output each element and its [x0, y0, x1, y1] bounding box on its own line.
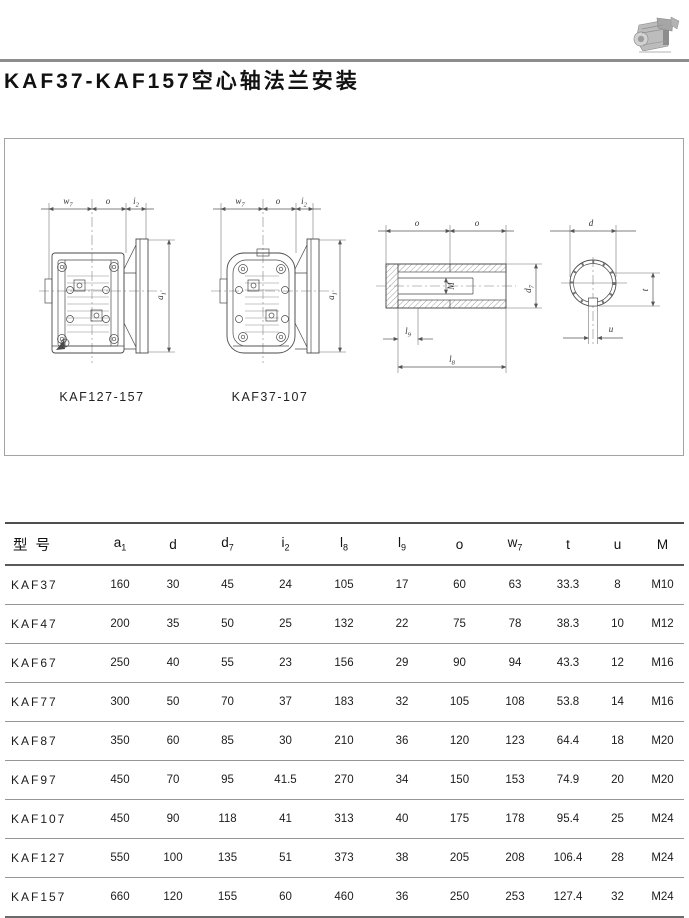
dim-label-i2: i2 — [133, 196, 140, 209]
value-cell: 460 — [315, 878, 373, 918]
value-cell: 85 — [199, 722, 256, 761]
value-cell: 350 — [93, 722, 147, 761]
model-cell: KAF37 — [5, 565, 93, 605]
value-cell: M24 — [641, 878, 684, 918]
value-cell: 78 — [488, 605, 542, 644]
value-cell: 175 — [431, 800, 488, 839]
model-cell: KAF47 — [5, 605, 93, 644]
dim-label-a1: a1 — [326, 292, 339, 300]
gearbox-view-kaf127-157: w7 o i2 a1 KAF127-157 — [39, 196, 175, 404]
value-cell: 50 — [199, 605, 256, 644]
value-cell: 40 — [147, 644, 199, 683]
value-cell: 70 — [199, 683, 256, 722]
table-row: KAF6725040552315629909443.312M16 — [5, 644, 684, 683]
value-cell: 210 — [315, 722, 373, 761]
table-row: KAF773005070371833210510853.814M16 — [5, 683, 684, 722]
table-row: KAF873506085302103612012364.418M20 — [5, 722, 684, 761]
table-head-row: 型号a1dd7i2l8l9ow7tuM — [5, 523, 684, 565]
value-cell: 100 — [147, 839, 199, 878]
value-cell: 36 — [373, 878, 431, 918]
value-cell: 105 — [431, 683, 488, 722]
value-cell: 8 — [594, 565, 641, 605]
model-cell: KAF157 — [5, 878, 93, 918]
value-cell: 160 — [93, 565, 147, 605]
value-cell: M20 — [641, 761, 684, 800]
value-cell: 25 — [594, 800, 641, 839]
value-cell: 120 — [431, 722, 488, 761]
value-cell: 43.3 — [542, 644, 594, 683]
dimension-drawing: w7 o i2 a1 KAF127-157 — [5, 139, 683, 455]
column-header: w7 — [488, 523, 542, 565]
value-cell: 24 — [256, 565, 315, 605]
dim-label-w7: w7 — [63, 196, 73, 209]
table-row: KAF1576601201556046036250253127.432M24 — [5, 878, 684, 918]
value-cell: 660 — [93, 878, 147, 918]
figure-caption-right: KAF37-107 — [232, 390, 309, 404]
value-cell: 150 — [431, 761, 488, 800]
dim-label-a1: a1 — [155, 292, 168, 300]
hollow-shaft-section: o o M d7 l9 l8 — [376, 218, 542, 373]
value-cell: 64.4 — [542, 722, 594, 761]
value-cell: M16 — [641, 644, 684, 683]
value-cell: M24 — [641, 800, 684, 839]
value-cell: 53.8 — [542, 683, 594, 722]
value-cell: 132 — [315, 605, 373, 644]
column-header: M — [641, 523, 684, 565]
value-cell: M16 — [641, 683, 684, 722]
table-row: KAF4720035502513222757838.310M12 — [5, 605, 684, 644]
value-cell: 95.4 — [542, 800, 594, 839]
value-cell: 127.4 — [542, 878, 594, 918]
value-cell: 60 — [431, 565, 488, 605]
model-cell: KAF87 — [5, 722, 93, 761]
value-cell: 250 — [431, 878, 488, 918]
value-cell: 41.5 — [256, 761, 315, 800]
value-cell: 105 — [315, 565, 373, 605]
column-header: o — [431, 523, 488, 565]
value-cell: 20 — [594, 761, 641, 800]
value-cell: 60 — [147, 722, 199, 761]
value-cell: 12 — [594, 644, 641, 683]
value-cell: 300 — [93, 683, 147, 722]
value-cell: 36 — [373, 722, 431, 761]
value-cell: 32 — [373, 683, 431, 722]
value-cell: 205 — [431, 839, 488, 878]
dimension-figure: w7 o i2 a1 KAF127-157 — [4, 138, 684, 456]
column-header: d — [147, 523, 199, 565]
value-cell: 450 — [93, 761, 147, 800]
value-cell: M10 — [641, 565, 684, 605]
value-cell: 106.4 — [542, 839, 594, 878]
dim-label-d: d — [589, 218, 594, 228]
value-cell: M12 — [641, 605, 684, 644]
value-cell: 250 — [93, 644, 147, 683]
value-cell: 155 — [199, 878, 256, 918]
value-cell: 313 — [315, 800, 373, 839]
value-cell: 33.3 — [542, 565, 594, 605]
page-title: KAF37-KAF157空心轴法兰安装 — [4, 65, 360, 95]
value-cell: 18 — [594, 722, 641, 761]
dim-label-l9: l9 — [405, 326, 412, 339]
model-cell: KAF67 — [5, 644, 93, 683]
value-cell: 118 — [199, 800, 256, 839]
table-row: KAF97450709541.52703415015374.920M20 — [5, 761, 684, 800]
gearmotor-photo — [627, 8, 683, 60]
value-cell: 32 — [594, 878, 641, 918]
value-cell: 200 — [93, 605, 147, 644]
figure-caption-left: KAF127-157 — [59, 390, 144, 404]
value-cell: 29 — [373, 644, 431, 683]
value-cell: M24 — [641, 839, 684, 878]
value-cell: 90 — [431, 644, 488, 683]
dim-label-t: t — [640, 288, 650, 291]
value-cell: 37 — [256, 683, 315, 722]
dim-label-i2: i2 — [301, 196, 308, 209]
table-row: KAF10745090118413134017517895.425M24 — [5, 800, 684, 839]
column-header: a1 — [93, 523, 147, 565]
value-cell: 550 — [93, 839, 147, 878]
gearbox-view-kaf37-107: w7 o i2 a1 KAF37-107 — [211, 196, 346, 404]
value-cell: 75 — [431, 605, 488, 644]
value-cell: 90 — [147, 800, 199, 839]
value-cell: 60 — [256, 878, 315, 918]
value-cell: 51 — [256, 839, 315, 878]
spec-table: 型号a1dd7i2l8l9ow7tuM KAF37160304524105176… — [5, 522, 684, 918]
column-header: 型号 — [5, 523, 93, 565]
value-cell: 14 — [594, 683, 641, 722]
value-cell: 50 — [147, 683, 199, 722]
value-cell: 74.9 — [542, 761, 594, 800]
table-body: KAF3716030452410517606333.38M10KAF472003… — [5, 565, 684, 917]
value-cell: 28 — [594, 839, 641, 878]
value-cell: 22 — [373, 605, 431, 644]
value-cell: 35 — [147, 605, 199, 644]
value-cell: 34 — [373, 761, 431, 800]
dim-label-o: o — [276, 196, 281, 206]
value-cell: 270 — [315, 761, 373, 800]
dim-label-w7: w7 — [235, 196, 245, 209]
value-cell: 95 — [199, 761, 256, 800]
value-cell: 183 — [315, 683, 373, 722]
catalog-page: { "page_title": "KAF37-KAF157空心轴法兰安装", "… — [0, 0, 689, 899]
value-cell: 55 — [199, 644, 256, 683]
model-cell: KAF77 — [5, 683, 93, 722]
value-cell: 135 — [199, 839, 256, 878]
value-cell: 120 — [147, 878, 199, 918]
dim-label-o: o — [415, 218, 420, 228]
column-header: t — [542, 523, 594, 565]
value-cell: 17 — [373, 565, 431, 605]
value-cell: 30 — [256, 722, 315, 761]
value-cell: M20 — [641, 722, 684, 761]
dim-label-u: u — [609, 324, 614, 334]
value-cell: 108 — [488, 683, 542, 722]
column-header: i2 — [256, 523, 315, 565]
value-cell: 450 — [93, 800, 147, 839]
value-cell: 123 — [488, 722, 542, 761]
dim-label-l8: l8 — [449, 354, 456, 367]
value-cell: 153 — [488, 761, 542, 800]
value-cell: 94 — [488, 644, 542, 683]
table-row: KAF1275501001355137338205208106.428M24 — [5, 839, 684, 878]
value-cell: 25 — [256, 605, 315, 644]
model-cell: KAF127 — [5, 839, 93, 878]
value-cell: 41 — [256, 800, 315, 839]
column-header: l8 — [315, 523, 373, 565]
value-cell: 63 — [488, 565, 542, 605]
value-cell: 23 — [256, 644, 315, 683]
value-cell: 208 — [488, 839, 542, 878]
header-rule — [0, 59, 689, 62]
model-cell: KAF107 — [5, 800, 93, 839]
value-cell: 38 — [373, 839, 431, 878]
dim-label-o: o — [106, 196, 111, 206]
table-row: KAF3716030452410517606333.38M10 — [5, 565, 684, 605]
column-header: u — [594, 523, 641, 565]
value-cell: 40 — [373, 800, 431, 839]
value-cell: 373 — [315, 839, 373, 878]
column-header: d7 — [199, 523, 256, 565]
value-cell: 178 — [488, 800, 542, 839]
value-cell: 70 — [147, 761, 199, 800]
value-cell: 10 — [594, 605, 641, 644]
dim-label-d7: d7 — [523, 284, 536, 293]
dim-label-M: M — [446, 282, 456, 291]
column-header: l9 — [373, 523, 431, 565]
model-cell: KAF97 — [5, 761, 93, 800]
value-cell: 38.3 — [542, 605, 594, 644]
value-cell: 253 — [488, 878, 542, 918]
value-cell: 30 — [147, 565, 199, 605]
bore-cross-section: d t u — [550, 218, 660, 346]
value-cell: 45 — [199, 565, 256, 605]
dim-label-o: o — [475, 218, 480, 228]
value-cell: 156 — [315, 644, 373, 683]
